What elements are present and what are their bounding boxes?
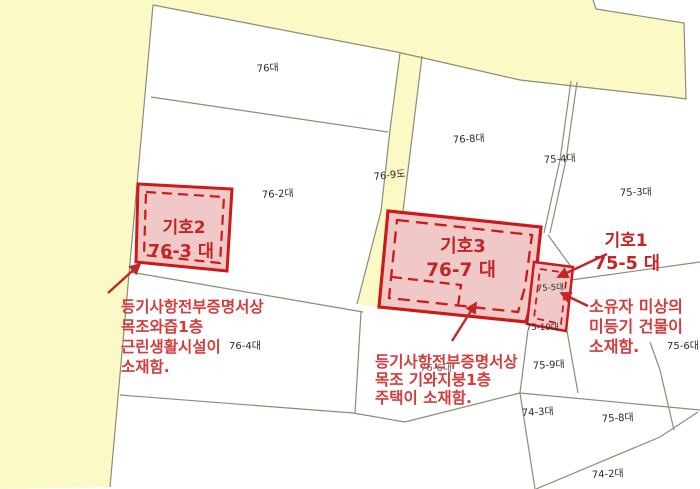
- lot-label-76-2: 76-2대: [262, 187, 294, 201]
- lot-label-76-4: 76-4대: [229, 340, 261, 352]
- lot-label-75-10: 75-10대: [526, 323, 559, 333]
- lot-label-76-8: 76-8대: [453, 132, 485, 146]
- note-center-line3: 주택이 소재함.: [375, 389, 472, 407]
- symbol-h1-lot: 75-5 대: [594, 254, 660, 274]
- symbol-h3-name: 기호3: [440, 236, 486, 257]
- lot-label-75-5: 75-5대: [537, 283, 565, 294]
- note-left-line4: 소재함.: [121, 358, 170, 376]
- cadastral-map: 76대 76-2대 76-9도 76-8대 75-4대 75-3대 75-5대 …: [0, 0, 700, 489]
- note-left-line3: 근린생활시설이: [121, 337, 221, 356]
- note-left-line1: 등기사항전부증명서상: [121, 297, 264, 316]
- note-center-line2: 목조 기와지붕1층: [375, 371, 491, 389]
- note-right-line1: 소유자 미상의: [589, 297, 683, 316]
- lot-label-76: 76대: [256, 61, 279, 75]
- lot-label-74-2: 74-2대: [592, 467, 624, 481]
- symbol-h2-lot: 76-3 대: [148, 242, 214, 262]
- note-left-line2: 목조와즙1층: [121, 318, 203, 336]
- lot-label-75-6: 75-6대: [667, 340, 699, 352]
- map-canvas: 76대 76-2대 76-9도 76-8대 75-4대 75-3대 75-5대 …: [0, 0, 700, 489]
- lot-label-75-9: 75-9대: [533, 358, 565, 372]
- note-right-line2: 미등기 건물이: [589, 317, 683, 336]
- symbol-h2-name: 기호2: [162, 218, 205, 238]
- symbol-h3-lot: 76-7 대: [426, 260, 496, 281]
- lot-label-74-3: 74-3대: [522, 405, 554, 419]
- symbol-h1-name: 기호1: [604, 231, 647, 251]
- lot-label-75-4: 75-4대: [544, 152, 576, 166]
- note-center-line1: 등기사항전부증명서상: [375, 352, 518, 371]
- lot-label-75-8: 75-8대: [602, 411, 634, 425]
- lot-label-75-3: 75-3대: [620, 186, 652, 199]
- note-right-line3: 소재함.: [589, 337, 639, 356]
